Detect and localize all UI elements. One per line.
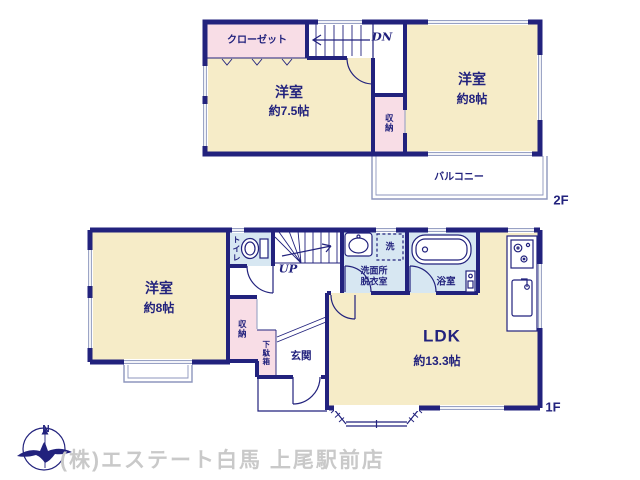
balcony-label: バルコニー [434, 173, 484, 183]
storage-2f-label: 収納 [385, 114, 394, 133]
entrance-label: 玄関 [291, 351, 312, 362]
closet-label: クローゼット [227, 36, 287, 46]
bathroom-label: 浴室 [436, 277, 455, 287]
room-8-1f-name: 洋室 [145, 281, 173, 295]
compass-north-label: N [42, 425, 49, 435]
stairs-down-label: DN [372, 31, 392, 43]
door-arc-entrance [293, 377, 320, 404]
room-8-2f-area [405, 24, 540, 154]
room-75-name: 洋室 [275, 85, 303, 99]
room-8-1f-size: 約8帖 [144, 302, 175, 314]
room-8-2f-size: 約8帖 [457, 93, 488, 105]
company-name: (株)エステート白馬 上尾駅前店 [60, 444, 385, 474]
toilet-icon [242, 239, 269, 259]
floor-2f-label: 2F [553, 194, 568, 207]
room-8-2f-name: 洋室 [458, 72, 486, 86]
washroom-label-line1: 洗面所 [360, 267, 387, 276]
bath-control-panel-icon [466, 271, 475, 292]
floor-plan-canvas: クローゼット DN 洋室 約7.5帖 収納 洋室 約8帖 バルコニー 2F 洋室… [0, 0, 640, 480]
storage-1f-label: 収納 [238, 320, 247, 339]
toilet-label: トイレ [232, 236, 240, 263]
ldk-name: LDK [423, 328, 461, 345]
floor-1f-label: 1F [545, 401, 560, 414]
door-arc-toilet [247, 266, 273, 293]
room-75-size: 約7.5帖 [269, 105, 310, 117]
floor-plan-drawing [0, 0, 640, 480]
entrance-step-lines [277, 317, 326, 342]
stove-icon [511, 240, 533, 268]
laundry-label: 洗 [385, 243, 394, 252]
washroom-label-line2: 脱衣室 [360, 278, 387, 287]
sink-icon [345, 233, 372, 256]
stairs-1f [275, 231, 337, 263]
kitchen-sink-icon [512, 279, 532, 316]
stairs-2f [313, 24, 370, 56]
bathtub-icon [412, 235, 471, 264]
ldk-size: 約13.3帖 [413, 355, 460, 367]
stairs-up-label: UP [279, 263, 298, 275]
room-8-1f-area [92, 232, 228, 362]
shoe-cabinet-label: 下駄箱 [262, 340, 270, 366]
